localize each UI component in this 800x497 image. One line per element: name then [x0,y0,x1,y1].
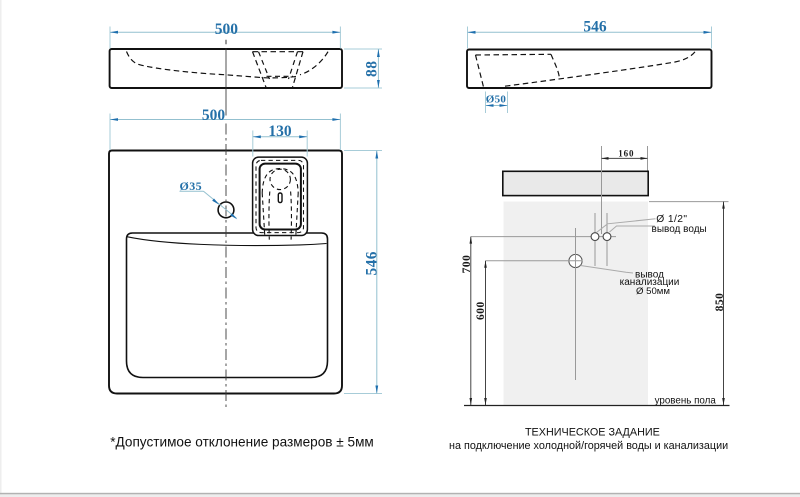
svg-text:700: 700 [461,255,473,274]
svg-text:850: 850 [714,293,726,312]
svg-text:600: 600 [475,301,487,320]
svg-text:546: 546 [363,251,380,275]
svg-text:160: 160 [618,149,634,159]
svg-text:546: 546 [583,19,607,36]
svg-text:Ø50: Ø50 [486,93,507,105]
svg-text:на подключение холодной/горяче: на подключение холодной/горячей воды и к… [449,440,728,452]
svg-text:Ø 50мм: Ø 50мм [636,286,670,297]
svg-text:500: 500 [215,21,239,38]
svg-text:130: 130 [268,123,292,140]
svg-text:88: 88 [363,61,380,77]
svg-text:500: 500 [202,107,226,124]
svg-text:ТЕХНИЧЕСКОЕ ЗАДАНИЕ: ТЕХНИЧЕСКОЕ ЗАДАНИЕ [525,426,660,438]
svg-text:*Допустимое отклонение размеро: *Допустимое отклонение размеров ± 5мм [110,434,374,449]
svg-text:вывод воды: вывод воды [652,224,707,235]
svg-text:уровень пола: уровень пола [655,395,717,406]
